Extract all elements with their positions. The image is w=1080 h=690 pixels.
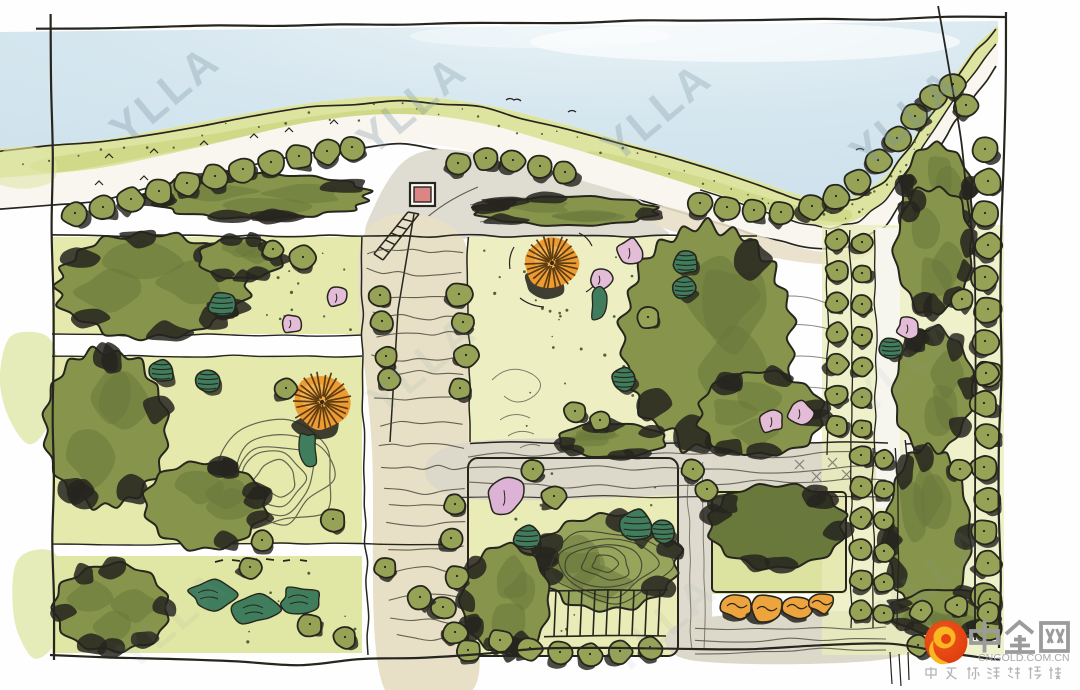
svg-text:CNGOLD.COM.CN: CNGOLD.COM.CN [978,652,1070,664]
